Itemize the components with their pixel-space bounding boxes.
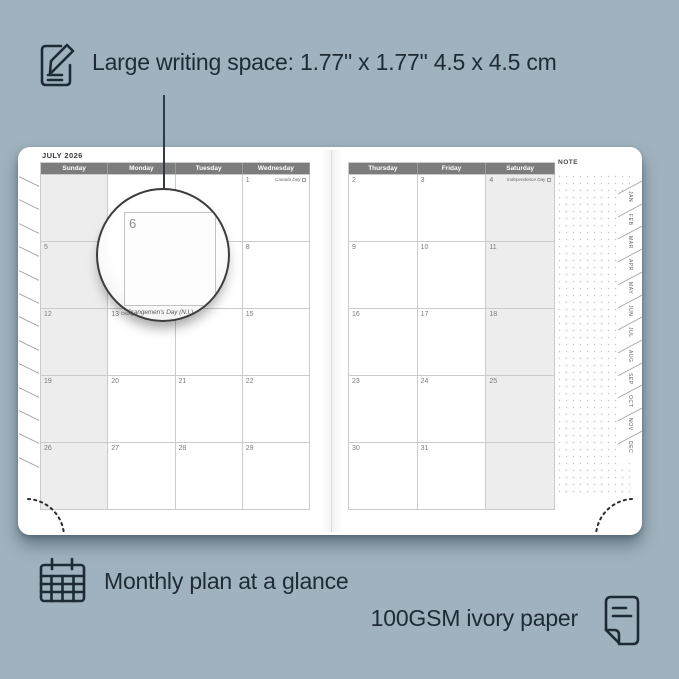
calendar-cell: 27 bbox=[108, 443, 175, 510]
calendar-cell: 17 bbox=[418, 309, 487, 376]
calendar-cell: 23 bbox=[349, 376, 418, 443]
holiday-flag-icon bbox=[547, 178, 551, 182]
spine-shadow bbox=[321, 150, 343, 532]
callout-writing-space: Large writing space: 1.77" x 1.77" 4.5 x… bbox=[92, 49, 557, 76]
note-label: NOTE bbox=[558, 159, 578, 166]
stitch-arc-right bbox=[590, 493, 634, 537]
spine bbox=[331, 150, 332, 532]
holiday-flag-icon bbox=[195, 311, 199, 315]
calendar-cell: 10 bbox=[418, 242, 487, 309]
calendar-cell: 8 bbox=[243, 242, 310, 309]
callout-monthly-plan: Monthly plan at a glance bbox=[104, 568, 349, 595]
calendar-cell bbox=[41, 175, 108, 242]
day-header: Monday bbox=[108, 163, 175, 175]
calendar-grid-right: Thursday Friday Saturday 2 3 4 Independe… bbox=[348, 162, 555, 510]
note-pencil-icon bbox=[37, 39, 81, 89]
calendar-cell: 4 Independence Day bbox=[486, 175, 555, 242]
holiday-flag-icon bbox=[302, 178, 306, 182]
calendar-cell: 12 bbox=[41, 309, 108, 376]
calendar-cell: 30 bbox=[349, 443, 418, 510]
magnifier-circle: 6 7 Orangemen's Day (N.I.) bbox=[96, 188, 230, 322]
calendar-cell: 11 bbox=[486, 242, 555, 309]
calendar-cell: 21 bbox=[176, 376, 243, 443]
calendar-cell: 28 bbox=[176, 443, 243, 510]
day-header: Thursday bbox=[349, 163, 418, 175]
holiday-label: Canada Day bbox=[275, 177, 306, 183]
calendar-cell: 1 Canada Day bbox=[243, 175, 310, 242]
stitch-arc-left bbox=[26, 493, 70, 537]
calendar-cell: 25 bbox=[486, 376, 555, 443]
month-title: JULY 2026 bbox=[42, 151, 83, 160]
magnified-date: 7 bbox=[220, 216, 227, 231]
calendar-cell: 19 bbox=[41, 376, 108, 443]
magnified-writing-cell bbox=[124, 212, 216, 306]
calendar-cell: 15 bbox=[243, 309, 310, 376]
calendar-cell bbox=[486, 443, 555, 510]
calendar-cell: 22 bbox=[243, 376, 310, 443]
day-header: Friday bbox=[418, 163, 487, 175]
magnified-holiday: Orangemen's Day (N.I.) bbox=[98, 309, 228, 316]
day-header: Wednesday bbox=[243, 163, 310, 175]
calendar-cell: 16 bbox=[349, 309, 418, 376]
planner-spread: JULY 2026 Sunday Monday Tuesday Wednesda… bbox=[18, 147, 642, 535]
callout-paper-spec: 100GSM ivory paper bbox=[371, 605, 578, 632]
holiday-label: Independence Day bbox=[507, 177, 551, 183]
calendar-cell: 14 bbox=[176, 309, 243, 376]
day-header: Tuesday bbox=[176, 163, 243, 175]
calendar-cell: 9 bbox=[349, 242, 418, 309]
calendar-cell: 31 bbox=[418, 443, 487, 510]
day-header: Sunday bbox=[41, 163, 108, 175]
calendar-cell: 29 bbox=[243, 443, 310, 510]
calendar-cell: 3 bbox=[418, 175, 487, 242]
leader-line bbox=[163, 95, 165, 191]
calendar-cell: 2 bbox=[349, 175, 418, 242]
calendar-cell: 18 bbox=[486, 309, 555, 376]
magnified-date: 6 bbox=[129, 216, 136, 231]
calendar-grid-icon bbox=[37, 556, 87, 604]
day-header: Saturday bbox=[486, 163, 555, 175]
calendar-cell: 20 bbox=[108, 376, 175, 443]
calendar-cell: 24 bbox=[418, 376, 487, 443]
paper-sheet-icon bbox=[598, 594, 642, 648]
